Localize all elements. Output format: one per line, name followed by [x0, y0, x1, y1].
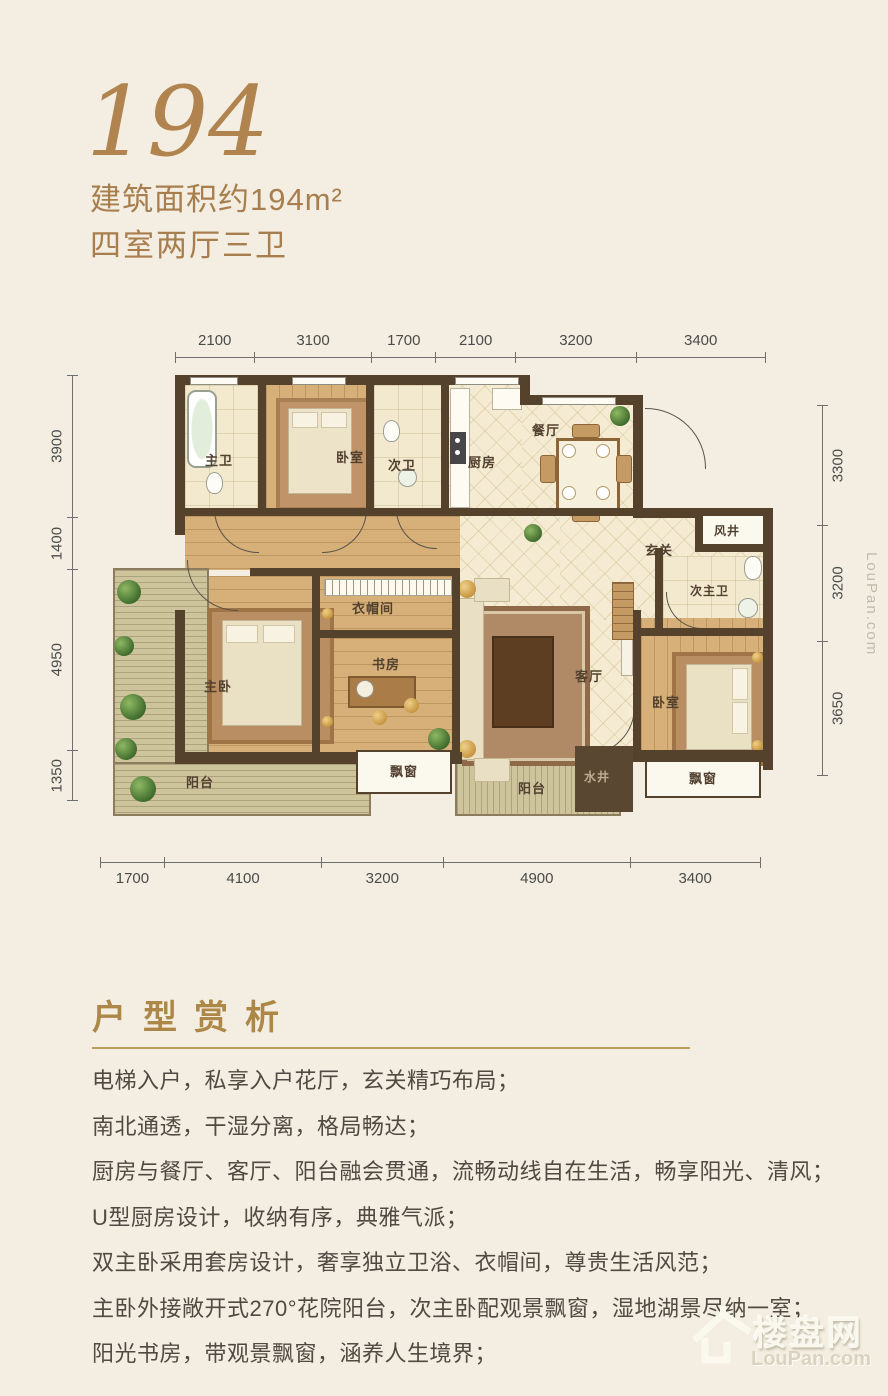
armchair-icon	[474, 578, 510, 602]
dim-label: 3200	[829, 525, 847, 642]
chair-icon	[616, 455, 632, 483]
plate-icon	[562, 444, 576, 458]
burner-icon	[455, 450, 460, 455]
analysis-title: 户型赏析	[92, 990, 296, 1039]
chair-icon	[372, 710, 387, 725]
pillow-icon	[292, 412, 318, 428]
sofa-icon	[456, 598, 484, 760]
unit-layout: 四室两厅三卫	[90, 220, 288, 265]
armchair-icon	[474, 758, 510, 782]
plant-icon	[524, 524, 542, 542]
dim-line	[822, 405, 823, 775]
dim-tick	[765, 352, 766, 363]
room-label-bay-window-right: 飘窗	[689, 771, 717, 786]
room-label-bedroom-right: 卧室	[652, 692, 680, 711]
toilet-icon	[744, 556, 762, 580]
unit-area: 建筑面积约194m²	[90, 174, 343, 219]
wall	[366, 385, 374, 508]
pillow-icon	[732, 702, 748, 734]
wall	[655, 548, 663, 636]
dim-line	[175, 357, 765, 358]
dim-tick	[67, 800, 78, 801]
wall	[452, 568, 460, 762]
dim-label: 4950	[48, 569, 66, 750]
feature-line: 南北通透，干湿分离，格局畅达；	[92, 1104, 862, 1150]
dim-tick	[164, 857, 165, 868]
pillow-icon	[226, 625, 258, 643]
room-label-bay-window-left: 飘窗	[390, 764, 418, 779]
lamp-icon	[322, 608, 333, 619]
chair-icon	[540, 455, 556, 483]
wall	[175, 752, 367, 764]
pillow-icon	[732, 668, 748, 700]
dim-label: 4900	[443, 869, 630, 889]
dim-label: 3400	[636, 331, 765, 351]
room-label-second-master-bath: 次主卫	[690, 582, 729, 599]
coffee-table-icon	[492, 636, 554, 728]
room-label-master-bedroom: 主卧	[204, 676, 232, 695]
wall	[695, 508, 703, 552]
dim-label: 1700	[100, 869, 165, 889]
chair-icon	[404, 698, 419, 713]
dim-tick	[760, 857, 761, 868]
dim-tick	[67, 750, 78, 751]
wall	[695, 544, 773, 552]
room-label-kitchen: 厨房	[468, 452, 496, 471]
dim-tick	[67, 517, 78, 518]
wall	[312, 576, 320, 762]
wardrobe-icon	[612, 582, 634, 640]
room-label-balcony-bottom: 阳台	[518, 778, 546, 797]
stove-icon	[450, 432, 466, 464]
desk-lamp-icon	[356, 680, 374, 698]
fridge-icon	[492, 388, 522, 410]
dim-tick	[515, 352, 516, 363]
wardrobe-rail-icon	[324, 579, 452, 596]
dim-tick	[321, 857, 322, 868]
feature-line: 双主卧采用套房设计，奢享独立卫浴、衣帽间，尊贵生活风范；	[92, 1240, 862, 1286]
dim-tick	[254, 352, 255, 363]
wall	[250, 568, 460, 576]
dim-tick	[371, 352, 372, 363]
dim-label: 1350	[48, 751, 66, 800]
wall	[258, 385, 266, 508]
wall	[633, 395, 643, 518]
room-label-cloakroom: 衣帽间	[352, 598, 394, 617]
house-logo-icon	[693, 1304, 751, 1364]
burner-icon	[455, 438, 460, 443]
wall	[441, 385, 449, 508]
dim-tick	[100, 857, 101, 868]
plate-icon	[562, 486, 576, 500]
dim-tick	[817, 405, 828, 406]
bay-window-right: 飘窗	[645, 760, 761, 798]
dim-label: 3300	[829, 405, 847, 525]
dim-label: 3900	[48, 375, 66, 518]
dim-line	[100, 862, 760, 863]
pillow-icon	[263, 625, 295, 643]
plant-icon	[115, 738, 137, 760]
room-label-study: 书房	[372, 654, 400, 673]
plant-icon	[130, 776, 156, 802]
dim-label: 2100	[436, 331, 515, 351]
wall	[175, 375, 185, 535]
room-label-living: 客厅	[575, 666, 603, 685]
dim-label: 1700	[372, 331, 436, 351]
feature-line: U型厨房设计，收纳有序，典雅气派；	[92, 1195, 862, 1241]
loupan-watermark: 楼盘网 LouPan.com	[693, 1296, 878, 1384]
room-label-second-bath: 次卫	[388, 455, 416, 474]
toilet-icon	[206, 472, 223, 494]
dim-tick	[817, 775, 828, 776]
dim-tick	[636, 352, 637, 363]
window	[190, 377, 238, 385]
room-label-bedroom-top: 卧室	[336, 447, 364, 466]
dim-label: 3200	[321, 869, 443, 889]
divider	[92, 1047, 690, 1049]
dim-tick	[175, 352, 176, 363]
lamp-icon	[322, 716, 333, 727]
dim-label: 3100	[254, 331, 371, 351]
watermark-domain: LouPan.com	[751, 1348, 871, 1371]
room-label-water-shaft: 水井	[584, 768, 610, 785]
toilet-icon	[383, 420, 400, 442]
dim-label: 3200	[515, 331, 636, 351]
wall	[175, 610, 185, 762]
bay-window-left: 飘窗	[356, 750, 452, 794]
dim-tick	[630, 857, 631, 868]
plate-icon	[596, 444, 610, 458]
lamp-icon	[752, 652, 763, 663]
entry-door-arc	[645, 408, 706, 469]
dim-label: 3400	[630, 869, 760, 889]
feature-line: 厨房与餐厅、客厅、阳台融会贯通，流畅动线自在生活，畅享阳光、清风；	[92, 1149, 862, 1195]
plant-icon	[114, 636, 134, 656]
dim-tick	[67, 569, 78, 570]
wall	[633, 610, 641, 762]
dim-label: 1400	[48, 518, 66, 569]
dim-tick	[817, 641, 828, 642]
plant-icon	[428, 728, 450, 750]
side-table-icon	[458, 580, 476, 598]
window	[292, 377, 346, 385]
room-label-entry: 玄关	[645, 540, 673, 559]
dim-tick	[817, 525, 828, 526]
dim-tick	[435, 352, 436, 363]
room-second-bath-floor	[374, 385, 441, 508]
unit-number: 194	[86, 74, 269, 170]
pillow-icon	[321, 412, 347, 428]
window	[455, 377, 519, 385]
wall	[320, 630, 460, 638]
room-label-master-bath: 主卫	[205, 450, 233, 469]
room-label-air-shaft: 风井	[714, 522, 740, 539]
plant-icon	[117, 580, 141, 604]
plate-icon	[596, 486, 610, 500]
chair-icon	[572, 424, 600, 438]
dim-tick	[443, 857, 444, 868]
side-watermark: LouPan.com	[863, 552, 880, 656]
window	[542, 397, 616, 405]
feature-line: 电梯入户，私享入户花厅，玄关精巧布局；	[92, 1058, 862, 1104]
room-label-dining: 餐厅	[532, 420, 560, 439]
plant-icon	[610, 406, 630, 426]
wall	[185, 508, 633, 516]
dim-tick	[67, 375, 78, 376]
dim-label: 2100	[175, 331, 254, 351]
dim-label: 4100	[165, 869, 321, 889]
dim-line	[72, 375, 73, 800]
sink-icon	[738, 598, 758, 618]
dim-label: 3650	[829, 642, 847, 775]
room-label-balcony-left: 阳台	[186, 772, 214, 791]
plant-icon	[120, 694, 146, 720]
